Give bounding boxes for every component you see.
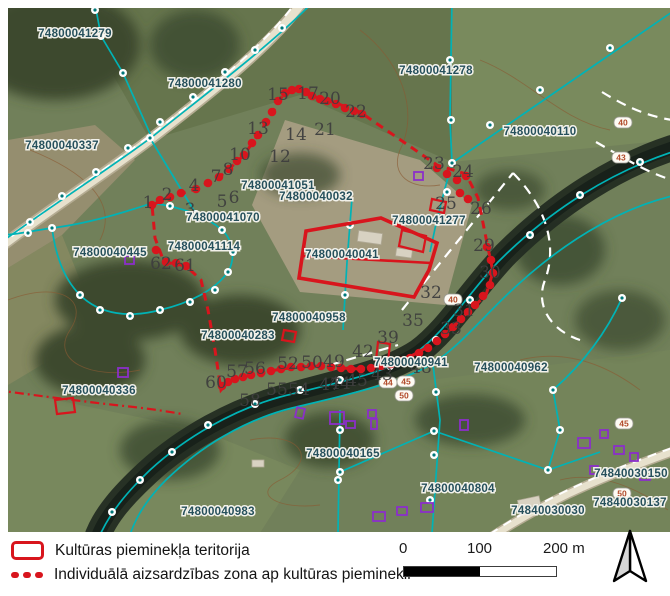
zone-point-number: 61: [174, 256, 196, 276]
parcel-label: 74800040804: [421, 483, 495, 495]
scale-mid: 100: [467, 540, 492, 557]
boundary-vertex-dot: [98, 308, 101, 311]
zone-point-number: 2: [162, 185, 173, 205]
parcel-label: 74800041278: [399, 65, 473, 77]
elevation-badge-label: 45: [401, 377, 411, 387]
map-canvas[interactable]: 4043404445504550 12345678101213141517202…: [0, 0, 670, 533]
boundary-vertex-dot: [578, 193, 581, 196]
boundary-vertex-dot: [638, 160, 641, 163]
boundary-vertex-dot: [60, 194, 63, 197]
boundary-vertex-dot: [126, 146, 129, 149]
zone-point-number: 26: [470, 199, 492, 219]
parcel-label: 74800040958: [272, 312, 346, 324]
zone-point-number: 32: [420, 283, 442, 303]
boundary-vertex-dot: [253, 48, 256, 51]
territory-label: Kultūras pieminekļa teritorija: [55, 542, 250, 560]
zone-point-number: 14: [285, 125, 307, 145]
boundary-vertex-dot: [488, 123, 491, 126]
zone-point-number: 62: [150, 254, 172, 274]
boundary-vertex-dot: [428, 498, 431, 501]
boundary-vertex-dot: [138, 478, 141, 481]
boundary-vertex-dot: [338, 470, 341, 473]
zone-point-number: 1: [143, 193, 154, 213]
boundary-vertex-dot: [121, 71, 124, 74]
boundary-vertex-dot: [432, 453, 435, 456]
parcel-label: 74840030030: [511, 505, 585, 517]
zone-point-number: 17: [297, 84, 319, 104]
zone-dot: [456, 189, 465, 198]
zone-point-number: 4: [189, 176, 200, 196]
legend-item-territory: Kultūras pieminekļa teritorija: [11, 541, 250, 560]
zone-point-number: 12: [269, 147, 291, 167]
zone-point-number: 30: [479, 263, 501, 283]
boundary-vertex-dot: [213, 288, 216, 291]
parcel-label: 74800040041: [305, 249, 379, 261]
territory-symbol: [11, 541, 44, 560]
boundary-vertex-dot: [110, 510, 113, 513]
elevation-badge-label: 40: [618, 118, 628, 128]
boundary-vertex-dot: [188, 300, 191, 303]
zone-point-number: 58: [239, 391, 261, 411]
boundary-vertex-dot: [528, 233, 531, 236]
boundary-vertex-dot: [538, 88, 541, 91]
boundary-vertex-dot: [343, 293, 346, 296]
scale-track: [403, 566, 557, 577]
zone-point-number: 35: [402, 311, 424, 331]
boundary-vertex-dot: [28, 220, 31, 223]
zone-point-number: 23: [423, 154, 445, 174]
parcel-label: 74800041070: [186, 212, 260, 224]
zone-point-number: 31: [453, 301, 475, 321]
zone-symbol: [11, 572, 43, 578]
zone-dot: [424, 344, 433, 353]
scale-start: 0: [399, 540, 407, 557]
legend-item-zone: Individuālā aizsardzības zona ap kultūra…: [11, 566, 411, 584]
zone-point-number: 60: [205, 373, 227, 393]
zone-point-number: 57: [226, 362, 248, 382]
boundary-vertex-dot: [546, 468, 549, 471]
parcel-label: 74800041277: [392, 215, 466, 227]
zone-point-number: 22: [345, 102, 367, 122]
zone-point-number: 52: [277, 354, 299, 374]
parcel-label: 74800040941: [374, 357, 448, 369]
zone-point-number: 45: [346, 371, 368, 391]
boundary-vertex-dot: [206, 423, 209, 426]
zone-point-number: 10: [229, 145, 251, 165]
boundary-vertex-dot: [220, 228, 223, 231]
boundary-vertex-dot: [158, 308, 161, 311]
map-page: 4043404445504550 12345678101213141517202…: [0, 0, 670, 596]
zone-label: Individuālā aizsardzības zona ap kultūra…: [54, 566, 411, 584]
boundary-vertex-dot: [620, 296, 623, 299]
boundary-vertex-dot: [551, 388, 554, 391]
boundary-vertex-dot: [148, 136, 151, 139]
zone-point-number: 7: [211, 167, 222, 187]
boundary-vertex-dot: [128, 314, 131, 317]
elevation-badge-label: 50: [399, 391, 409, 401]
boundary-vertex-dot: [94, 170, 97, 173]
zone-dot: [177, 189, 186, 198]
zone-point-number: 21: [314, 120, 336, 140]
zone-point-number: 20: [319, 89, 341, 109]
parcel-label: 74800040032: [279, 191, 353, 203]
boundary-vertex-dot: [78, 293, 81, 296]
zone-dot: [479, 292, 488, 301]
boundary-vertex-dot: [170, 450, 173, 453]
scale-fill: [404, 567, 480, 576]
zone-point-number: 24: [452, 162, 474, 182]
boundary-vertex-dot: [558, 428, 561, 431]
north-arrow: [608, 528, 652, 586]
scale-end: 200 m: [543, 540, 585, 557]
zone-point-number: 13: [247, 119, 269, 139]
zone-point-number: 33: [440, 319, 462, 339]
boundary-vertex-dot: [191, 95, 194, 98]
boundary-vertex-dot: [226, 270, 229, 273]
boundary-vertex-dot: [449, 118, 452, 121]
zone-dot: [267, 367, 276, 376]
boundary-vertex-dot: [338, 428, 341, 431]
parcel-label: 74800040336: [62, 385, 136, 397]
boundary-vertex-dot: [50, 226, 53, 229]
boundary-vertex-dot: [448, 58, 451, 61]
zone-point-number: 5: [217, 192, 228, 212]
zone-point-number: 25: [435, 194, 457, 214]
zone-point-number: 50: [301, 353, 323, 373]
zone-dot: [152, 246, 161, 255]
zone-point-number: 15: [267, 85, 289, 105]
parcel-label: 74800040962: [474, 362, 548, 374]
parcel-label: 74800041279: [38, 28, 112, 40]
parcel-label: 74800040445: [73, 247, 147, 259]
parcel-label: 74800040165: [306, 448, 380, 460]
boundary-vertex-dot: [93, 8, 96, 11]
zone-dot: [415, 349, 424, 358]
zone-point-number: 6: [229, 188, 240, 208]
parcel-label: 74800040983: [181, 506, 255, 518]
zone-point-number: 54: [288, 380, 310, 400]
boundary-vertex-dot: [336, 478, 339, 481]
parcel-label: 74800041114: [168, 241, 241, 253]
elevation-badge-label: 45: [619, 419, 629, 429]
aerial-imagery: 4043404445504550 12345678101213141517202…: [0, 0, 670, 533]
boundary-vertex-dot: [223, 70, 226, 73]
boundary-vertex-dot: [608, 46, 611, 49]
parcel-label: 74800040337: [25, 140, 99, 152]
scale-bar: 0 100 200 m: [395, 540, 585, 585]
zone-point-number: 55: [266, 380, 288, 400]
elevation-badge-label: 43: [616, 153, 626, 163]
boundary-vertex-dot: [280, 26, 283, 29]
parcel-label: 74800040110: [503, 126, 576, 138]
zone-point-number: 39: [377, 328, 399, 348]
boundary-vertex-dot: [434, 390, 437, 393]
zone-point-number: 49: [323, 352, 345, 372]
zone-dot: [268, 108, 277, 117]
boundary-vertex-dot: [26, 231, 29, 234]
zone-point-number: 47: [319, 375, 341, 395]
boundary-vertex-dot: [158, 120, 161, 123]
boundary-vertex-dot: [432, 429, 435, 432]
parcel-label: 74840030150: [594, 468, 668, 480]
parcel-label: 74800041280: [168, 78, 242, 90]
zone-point-number: 42: [352, 342, 374, 362]
parcel-label: 74800040283: [201, 330, 275, 342]
parcel-label: 74840030137: [593, 497, 667, 509]
zone-point-number: 29: [473, 236, 495, 256]
